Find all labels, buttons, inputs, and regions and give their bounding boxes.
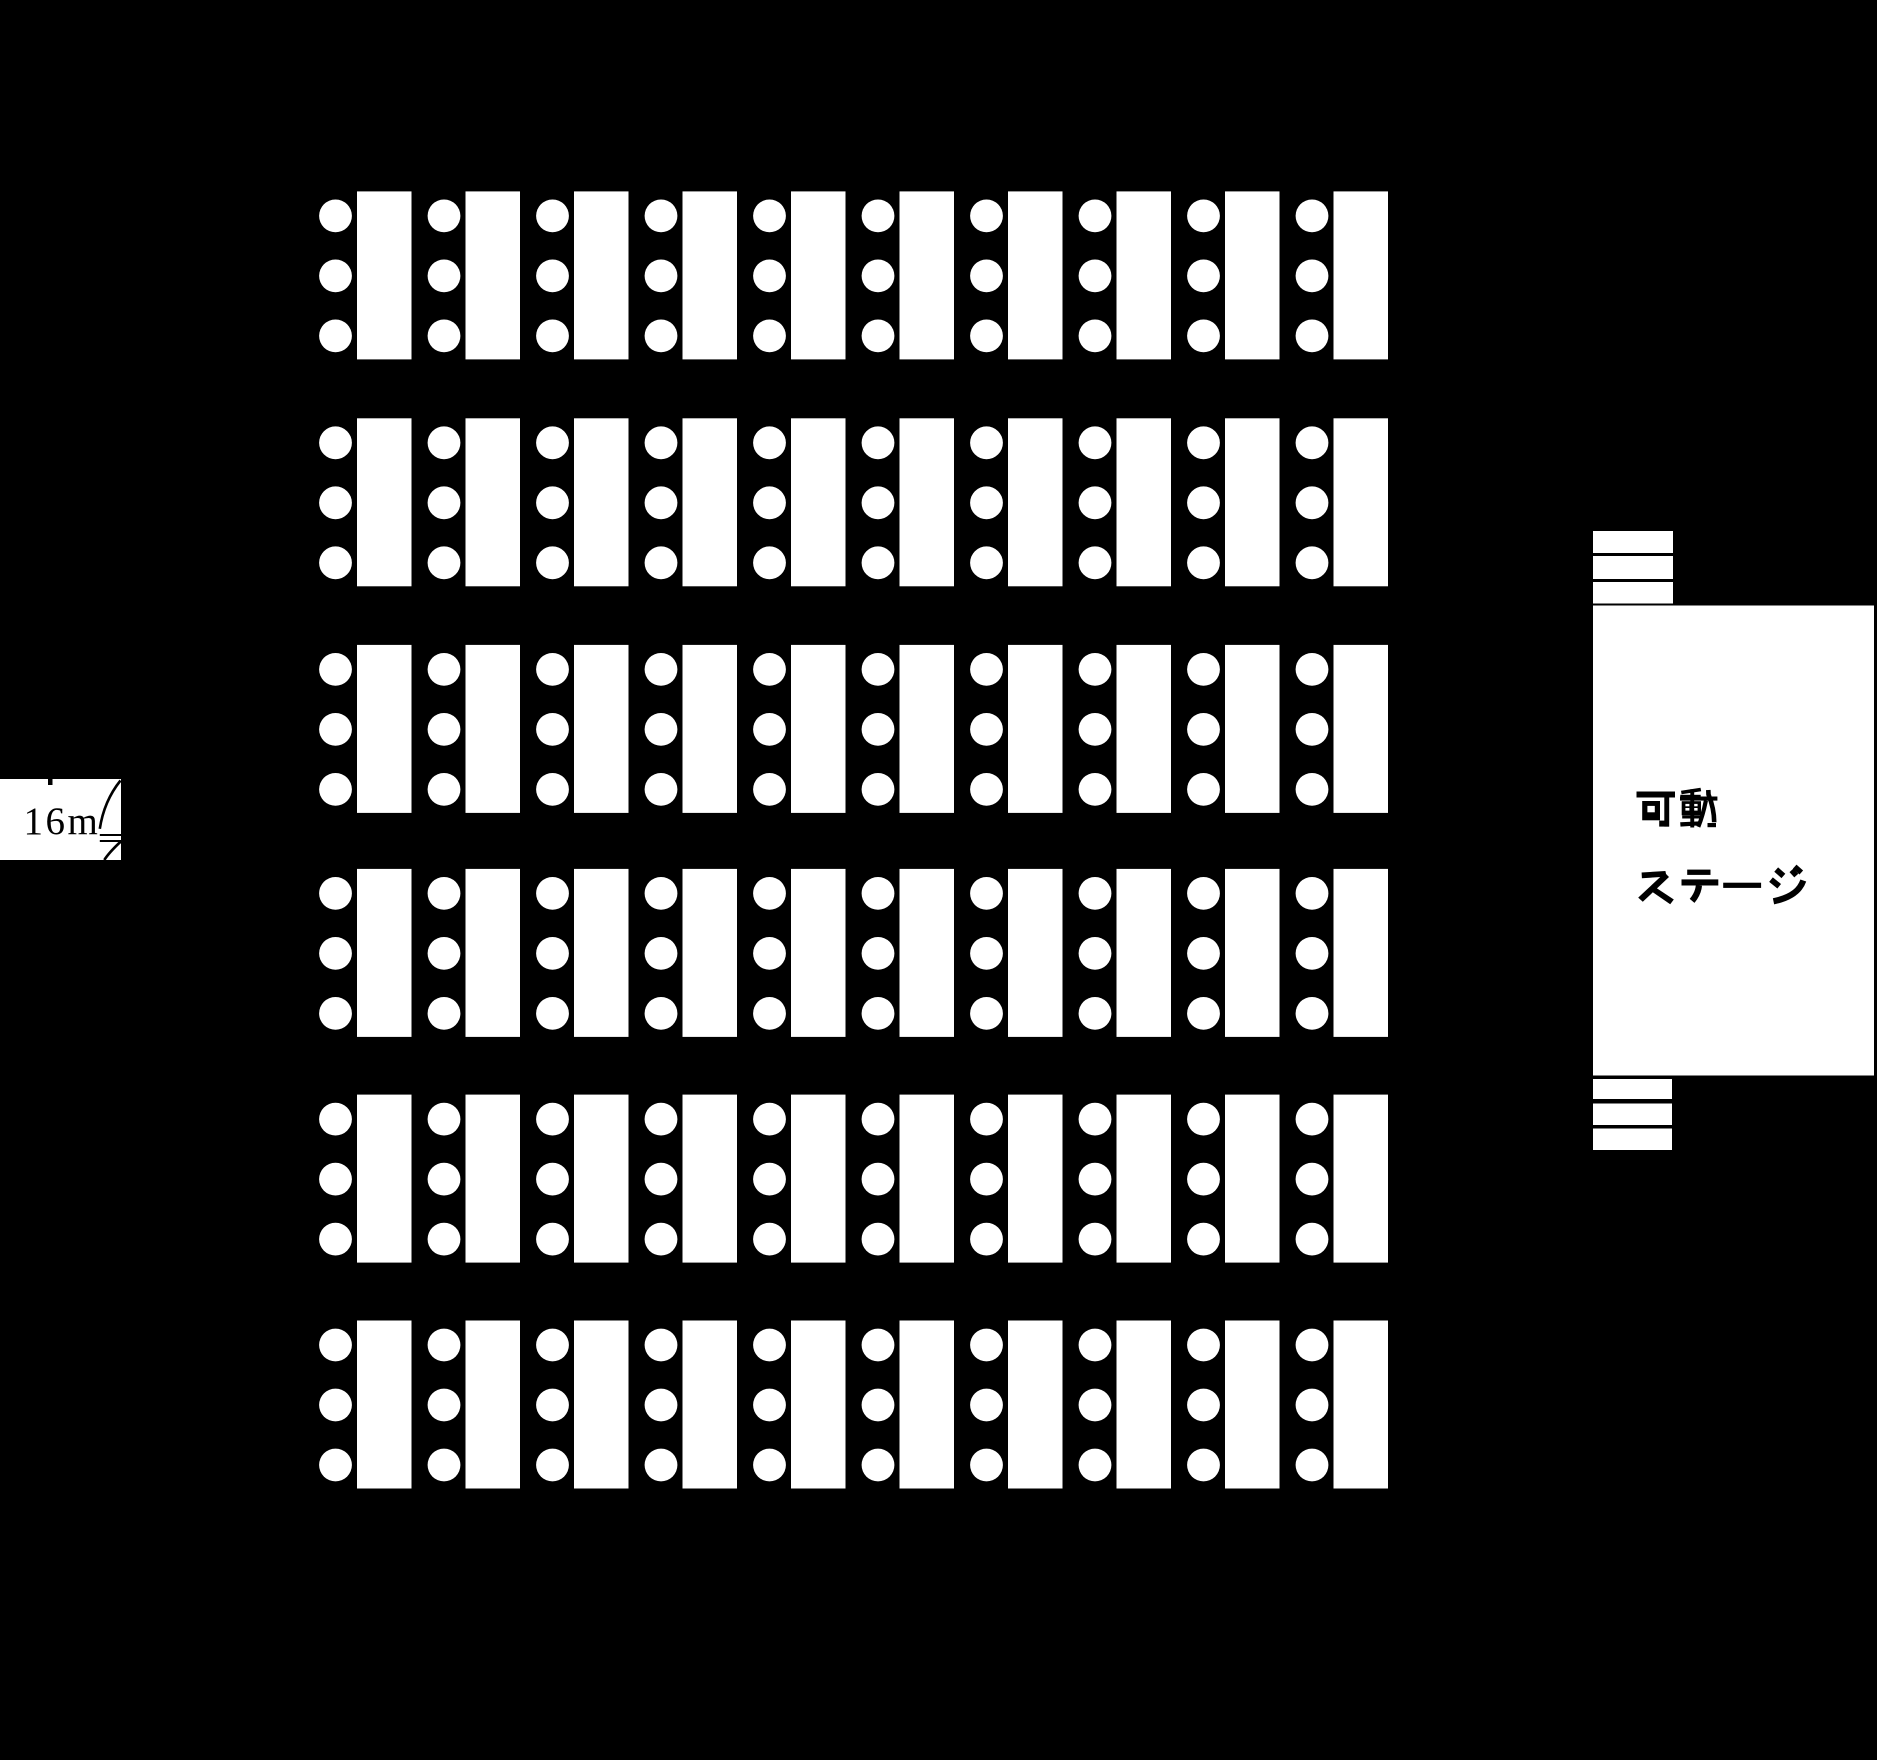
svg-text:16m: 16m (24, 800, 101, 843)
